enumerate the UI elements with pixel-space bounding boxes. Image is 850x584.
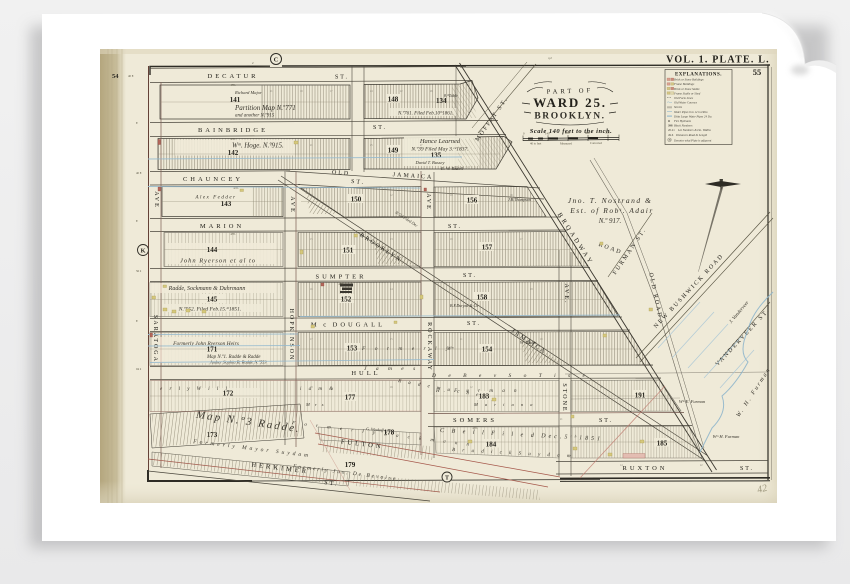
svg-text:Frame Stable or Shed: Frame Stable or Shed [673, 91, 701, 95]
svg-text:q 2: q 2 [548, 56, 552, 60]
svg-text:54: 54 [112, 73, 119, 80]
svg-text:E: E [136, 219, 138, 223]
svg-text:ST.: ST. [599, 418, 613, 424]
svg-text:ST.: ST. [335, 75, 349, 81]
svg-text:ROCKAWAY: ROCKAWAY [426, 322, 432, 372]
svg-text:280: 280 [565, 131, 570, 135]
svg-text:C: C [274, 57, 279, 64]
svg-text:153: 153 [347, 345, 358, 353]
svg-text:Block Numbers: Block Numbers [674, 124, 693, 128]
svg-text:Partition Map N.º771: Partition Map N.º771 [234, 104, 296, 112]
svg-text:Brick or Stone Buildings: Brick or Stone Buildings [674, 78, 704, 82]
svg-text:140: 140 [545, 131, 550, 135]
svg-text:BROOKLYN.: BROOKLYN. [534, 112, 605, 122]
svg-text:and another N.º915: and another N.º915 [235, 113, 275, 119]
svg-text:157: 157 [482, 244, 493, 252]
svg-text:ST.: ST. [448, 224, 462, 230]
svg-text:40 E: 40 E [136, 171, 142, 175]
svg-text:470.: 470. [230, 83, 236, 87]
svg-text:BAINBRIDGE: BAINBRIDGE [198, 127, 268, 134]
svg-text:HULL: HULL [351, 370, 380, 377]
svg-text:420: 420 [585, 131, 590, 135]
svg-text:M a r i a n a: M a r i a n a [473, 402, 536, 407]
svg-text:AVE: AVE [289, 196, 295, 214]
svg-text:WARD 25.: WARD 25. [533, 95, 607, 110]
svg-text:Distances Road & Length: Distances Road & Length [675, 133, 708, 137]
svg-text:156: 156 [467, 197, 478, 205]
svg-text:20.21: 20.21 [668, 128, 675, 132]
svg-text:J.B.Thompson: J.B.Thompson [508, 197, 531, 202]
svg-text:Measured: Measured [560, 141, 572, 145]
svg-text:Scale 140 feet to the inch.: Scale 140 feet to the inch. [530, 128, 612, 135]
svg-text:SUMPTER: SUMPTER [316, 274, 367, 281]
svg-text:e r l y W i l l: e r l y W i l l [160, 387, 230, 392]
svg-text:150: 150 [351, 196, 362, 204]
svg-text:Denotes what Plate is adjacent: Denotes what Plate is adjacent [673, 139, 711, 143]
svg-text:171: 171 [207, 346, 218, 354]
svg-text:134: 134 [436, 97, 447, 105]
svg-text:Wᵐ: Wᵐ [447, 347, 454, 352]
svg-text:151: 151 [343, 247, 354, 255]
svg-text:OLD: OLD [332, 170, 351, 177]
svg-text:Old Water Courses: Old Water Courses [674, 101, 698, 105]
svg-text:149: 149 [388, 147, 399, 155]
svg-text:AVE.: AVE. [563, 283, 569, 304]
svg-text:Fire Hydrants: Fire Hydrants [673, 119, 692, 123]
svg-text:142: 142 [228, 149, 239, 157]
svg-text:Wᵐ. Hoge. N.º915.: Wᵐ. Hoge. N.º915. [232, 142, 284, 150]
svg-text:AVE: AVE [153, 191, 159, 209]
svg-text:470.: 470. [230, 137, 236, 141]
svg-text:Radde, Sockmann & Duhrmann: Radde, Sockmann & Duhrmann [168, 286, 246, 292]
svg-text:Frame Buildings: Frame Buildings [673, 82, 695, 86]
svg-text:135: 135 [431, 152, 442, 160]
svg-text:K: K [140, 248, 145, 255]
svg-text:ST.: ST. [373, 125, 387, 131]
svg-text:N.º 917.: N.º 917. [598, 217, 622, 225]
svg-text:40 to feet: 40 to feet [530, 142, 541, 146]
svg-text:M c DOUGALL: M c DOUGALL [311, 322, 385, 329]
svg-text:MARION: MARION [200, 223, 244, 230]
svg-text:E: E [136, 319, 138, 323]
svg-text:CHAUNCEY: CHAUNCEY [183, 176, 243, 183]
svg-text:Lot Numbers & Do. Widths: Lot Numbers & Do. Widths [677, 128, 712, 132]
svg-text:40 E: 40 E [128, 74, 134, 78]
svg-text:ST.: ST. [740, 466, 754, 472]
svg-text:179: 179 [345, 461, 356, 469]
svg-text:470.: 470. [338, 282, 344, 286]
svg-text:AVE: AVE [425, 193, 431, 211]
svg-text:Old Farm Lines: Old Farm Lines [674, 96, 694, 100]
svg-text:STONE: STONE [561, 383, 567, 412]
svg-text:Streets: Streets [674, 105, 683, 109]
svg-text:56 2: 56 2 [136, 269, 142, 273]
svg-text:Wᵐ E. Furman: Wᵐ E. Furman [679, 399, 706, 404]
svg-text:158: 158 [477, 294, 488, 302]
svg-text:E: E [136, 121, 138, 125]
svg-text:184: 184 [486, 441, 497, 449]
svg-text:B.F.Duryea & Co: B.F.Duryea & Co [450, 303, 478, 308]
svg-text:Ditto Large Water Pipes 24 Do: Ditto Large Water Pipes 24 Do. [673, 114, 712, 118]
svg-text:178: 178 [384, 429, 395, 437]
svg-text:H: H [669, 139, 671, 142]
svg-text:VOL. 1. PLATE. L.: VOL. 1. PLATE. L. [666, 55, 770, 66]
svg-text:49.6: 49.6 [668, 133, 674, 137]
svg-text:141: 141 [230, 96, 241, 104]
svg-text:T: T [445, 476, 449, 482]
svg-text:RUXTON: RUXTON [623, 465, 668, 472]
svg-text:Brick or Stone Stable: Brick or Stone Stable [674, 87, 700, 91]
svg-text:177: 177 [345, 394, 356, 402]
svg-text:148: 148 [388, 96, 399, 104]
svg-text:398: 398 [668, 124, 673, 128]
svg-text:Est. of Robᵗ. Adair: Est. of Robᵗ. Adair [569, 206, 654, 215]
svg-text:HOPKINSON: HOPKINSON [288, 309, 294, 362]
svg-text:Water Pipes 6 to 12 in Ditto: Water Pipes 6 to 12 in Ditto [674, 110, 708, 114]
svg-text:SARATOGA: SARATOGA [152, 315, 158, 363]
svg-text:04 2: 04 2 [136, 367, 142, 371]
svg-text:144: 144 [207, 246, 218, 254]
svg-text:David T. Bussey: David T. Bussey [414, 160, 444, 165]
svg-text:143: 143 [221, 200, 232, 208]
svg-text:Richard Major: Richard Major [234, 90, 262, 95]
svg-text:ST.: ST. [351, 179, 365, 186]
svg-text:Jno. T. Nostrand &: Jno. T. Nostrand & [568, 196, 653, 205]
svg-text:DECATUR: DECATUR [208, 73, 259, 80]
svg-text:ST.: ST. [463, 273, 477, 279]
svg-text:ST.: ST. [467, 321, 481, 327]
svg-text:560: 560 [605, 131, 610, 135]
svg-text:Hance Learned: Hance Learned [419, 138, 461, 145]
svg-text:470.: 470. [230, 232, 236, 236]
svg-text:185: 185 [657, 440, 668, 448]
svg-text:M r s: M r s [305, 402, 326, 407]
svg-text:Corrected: Corrected [590, 141, 602, 145]
svg-text:154: 154 [482, 346, 493, 354]
svg-text:Wᵐ H. Furman: Wᵐ H. Furman [713, 434, 740, 439]
svg-text:470.: 470. [472, 426, 478, 430]
svg-text:55: 55 [753, 67, 762, 77]
svg-text:John Ryerson et al to: John Ryerson et al to [180, 258, 256, 265]
svg-text:i a m &: i a m & [300, 387, 336, 392]
